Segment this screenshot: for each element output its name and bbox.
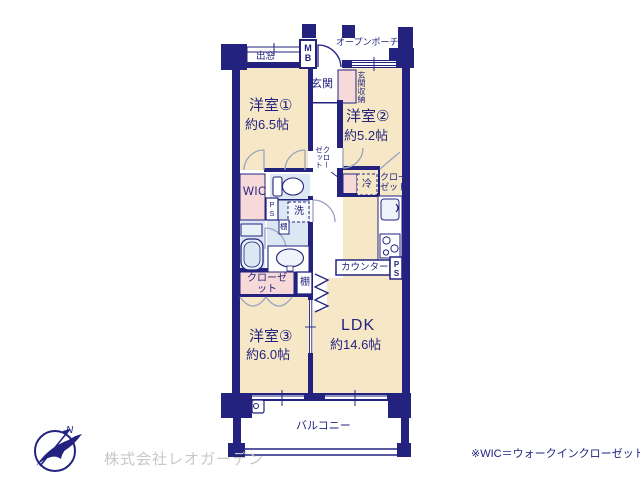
shelf-label: 棚 bbox=[300, 277, 310, 288]
room3-name: 洋室③ bbox=[249, 329, 292, 346]
meter-box-label: MB bbox=[303, 43, 312, 63]
compass-logo-icon bbox=[35, 429, 82, 471]
room3-size: 約6.0帖 bbox=[246, 348, 290, 362]
bathtub-icon bbox=[241, 224, 263, 270]
compass-north-label: N bbox=[66, 425, 73, 436]
balcony-hatch-icon bbox=[252, 400, 264, 413]
room2-size: 約5.2帖 bbox=[344, 129, 388, 143]
room2-name: 洋室② bbox=[346, 109, 389, 126]
kitchen-closet-label: クローゼット bbox=[379, 172, 408, 192]
hall-closet-label: クローゼット bbox=[315, 146, 330, 172]
counter-label: カウンター bbox=[341, 263, 389, 273]
company-name: 株式会社レオガーデン bbox=[104, 452, 264, 469]
fridge-label: 冷 bbox=[362, 179, 372, 190]
room3-closet-label: クローゼット bbox=[244, 273, 290, 295]
pipe-space-top-label: PS bbox=[268, 200, 276, 218]
floor-plan-page: 出窓 MB オープンポーチ 玄関 玄関収納 洋室① 約6.5帖 洋室② 約5.2… bbox=[0, 0, 640, 480]
entrance-storage-label: 玄関収納 bbox=[357, 71, 365, 105]
ldk-name: LDK bbox=[341, 317, 375, 335]
pipe-space-bottom-label: PS bbox=[392, 260, 400, 278]
open-porch-label: オープンポーチ bbox=[336, 38, 398, 48]
floor-plan-drawing bbox=[0, 0, 640, 480]
entrance-label: 玄関 bbox=[311, 78, 333, 90]
entrance-door-icon bbox=[318, 45, 341, 67]
room1-size: 約6.5帖 bbox=[245, 118, 289, 132]
ldk-size: 約14.6帖 bbox=[330, 338, 381, 352]
bay-window-label: 出窓 bbox=[256, 52, 275, 62]
room1-name: 洋室① bbox=[249, 98, 292, 115]
laundry-label: 洗 bbox=[294, 206, 304, 217]
ldk-folding-door-icon bbox=[315, 274, 328, 312]
vanity-sink-icon bbox=[268, 246, 309, 272]
wic-label: WIC bbox=[243, 186, 267, 199]
stove-icon bbox=[380, 234, 400, 258]
toilet-icon bbox=[273, 177, 304, 196]
balcony-label: バルコニー bbox=[296, 420, 351, 432]
shelf-small-label: 棚 bbox=[280, 223, 288, 231]
wic-note: ※WIC＝ウォークインクローゼット bbox=[471, 448, 640, 460]
washroom-door-icon bbox=[313, 200, 335, 222]
